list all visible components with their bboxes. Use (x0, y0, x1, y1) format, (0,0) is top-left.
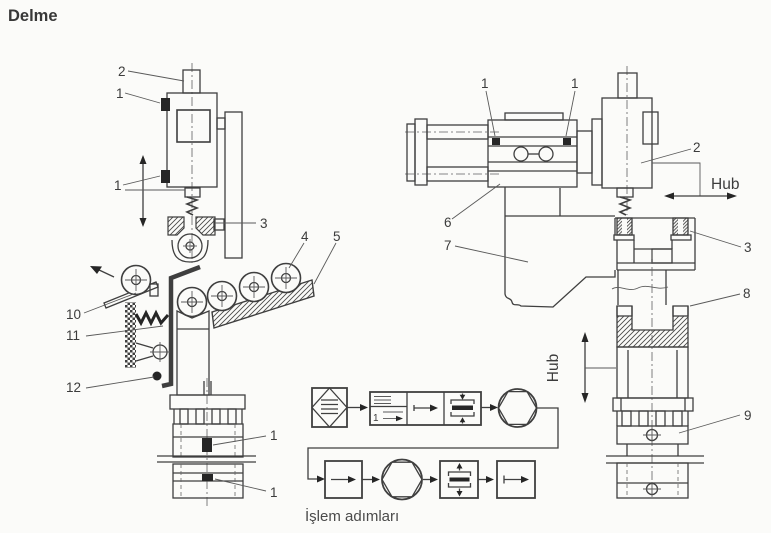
lever-pivot (136, 342, 170, 362)
lifter-roller (178, 288, 207, 317)
right-drill-head (602, 66, 658, 215)
right-drill-bit (620, 197, 630, 215)
fc-cell-separate: 1 (370, 397, 407, 425)
fc-composite-box: 1 (370, 392, 481, 425)
label-10: 10 (66, 307, 81, 322)
fc-eject-box (497, 461, 535, 498)
ramp-roller-2 (240, 273, 269, 302)
slide-sensor-left (492, 138, 500, 145)
hub-horizontal-dimension: Hub (652, 163, 739, 200)
fc-feed-box-2 (325, 461, 362, 498)
label-1-slide-left: 1 (481, 76, 489, 91)
fc-arrow-3 (362, 476, 380, 483)
cyl-sensor-lower-mark (202, 474, 213, 481)
clamp-cylinder-9 (606, 398, 704, 498)
slide-top-plate (505, 113, 563, 120)
machine-frame (505, 187, 615, 307)
part-magazine-ramp (208, 264, 315, 329)
lifter-column (177, 288, 209, 396)
label-1-lower-left: 1 (114, 178, 122, 193)
clamp-cyl-teeth (617, 411, 688, 426)
figure-page: Delme (0, 0, 771, 533)
ejected-part (122, 266, 151, 295)
mount-wall (125, 302, 136, 368)
clamp-cyl-lower (617, 463, 688, 498)
label-1-upper-left: 1 (116, 86, 124, 101)
right-station: Hub (405, 66, 752, 500)
label-6: 6 (444, 215, 452, 230)
label-3-left: 3 (260, 216, 268, 231)
fc-drill-circle-2 (382, 460, 422, 500)
label-2-left: 2 (118, 64, 126, 79)
flowchart-caption: İşlem adımları (305, 507, 399, 525)
fc-cell-feed (414, 405, 438, 412)
hub-vertical-dimension: Hub (545, 332, 616, 403)
fc-step-number: 1 (373, 413, 379, 424)
left-fixture (168, 217, 224, 262)
clamp-cyl-flange (613, 398, 693, 411)
right-station-labels: 1 1 2 6 7 3 8 9 (444, 76, 752, 433)
ramp-roller-3 (272, 264, 301, 293)
left-body-window (177, 110, 210, 142)
workpiece-8 (617, 306, 688, 398)
label-8: 8 (743, 286, 751, 301)
cylinder-flange (170, 395, 245, 409)
left-stroke-arrow (140, 155, 147, 227)
hub-horizontal-label: Hub (711, 176, 739, 193)
fc-drill-circle-1 (499, 389, 537, 427)
left-spindle-shank (183, 70, 200, 93)
fc-connector-wire (308, 408, 558, 483)
right-head-sidebox (643, 112, 658, 144)
left-sensor-upper (161, 98, 170, 111)
label-12: 12 (66, 380, 81, 395)
left-mount-bracket (217, 118, 225, 129)
slide-cylinder-cap (415, 119, 427, 185)
hub-vertical-label: Hub (545, 354, 562, 382)
ramp-roller-1 (208, 282, 237, 311)
discharge-chute (90, 266, 158, 309)
label-4: 4 (301, 229, 309, 244)
fc-cell-clamp (451, 394, 474, 424)
slide-sensor-right (563, 138, 571, 145)
delme-technical-figure: Delme (0, 0, 771, 533)
cyl-sensor-upper-mark (202, 438, 212, 452)
fc-arrow-2 (481, 404, 498, 411)
left-station: 2 1 1 3 4 5 10 11 12 1 1 (66, 63, 341, 506)
label-1-slide-right: 1 (571, 76, 579, 91)
slide-unit (405, 113, 602, 187)
process-flowchart: 1 (305, 388, 558, 525)
ejector-spring (136, 313, 168, 323)
label-1-cyl-upper: 1 (270, 428, 278, 443)
label-1-cyl-lower: 1 (270, 485, 278, 500)
left-drill-unit (140, 63, 243, 263)
left-sensor-lower (161, 170, 170, 183)
left-column-plate (225, 112, 242, 258)
head-adapter-plate (592, 119, 602, 185)
cylinder-teeth (174, 409, 242, 424)
right-drill-collar (617, 188, 633, 197)
label-7: 7 (444, 238, 452, 253)
label-2-right: 2 (693, 140, 701, 155)
fc-arrow-4 (423, 476, 438, 483)
fc-arrow-1 (347, 404, 368, 411)
left-lift-cylinder (157, 378, 256, 506)
lever-stop-dot (153, 372, 162, 381)
fc-arrow-5 (478, 476, 494, 483)
label-3-right: 3 (744, 240, 752, 255)
ejector-lever (162, 267, 200, 386)
label-5: 5 (333, 229, 341, 244)
bushing-plate (614, 218, 695, 270)
label-9: 9 (744, 408, 752, 423)
page-title: Delme (8, 7, 58, 25)
eject-direction-arrow (90, 266, 114, 277)
left-drill-collar (185, 188, 200, 197)
label-11: 11 (66, 328, 80, 343)
right-spindle-shank (618, 73, 637, 98)
fc-magazine-box (312, 388, 347, 427)
fc-unclamp-box (440, 461, 478, 498)
